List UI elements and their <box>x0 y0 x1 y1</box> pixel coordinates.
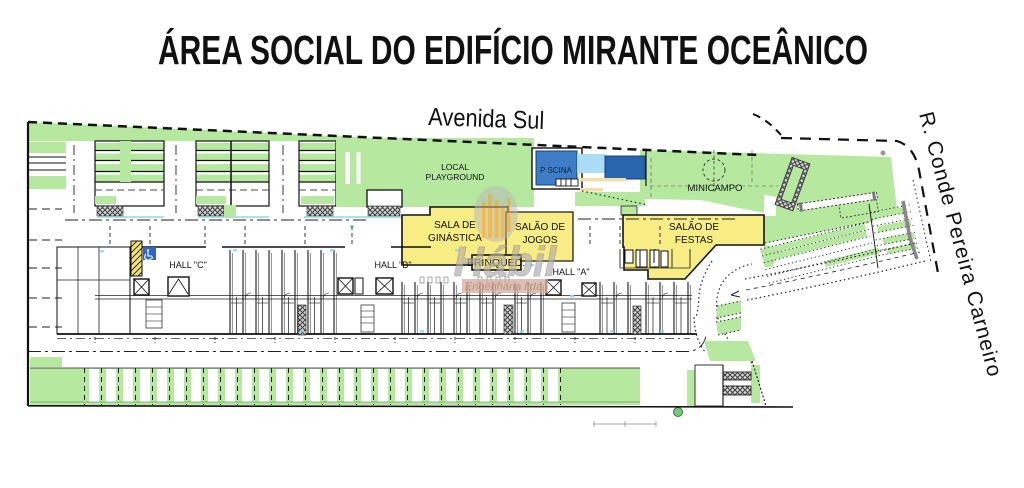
svg-text:FESTAS: FESTAS <box>675 235 713 246</box>
svg-text:MINICAMPO: MINICAMPO <box>688 183 743 194</box>
svg-text:ÁREA SOCIAL DO EDIFÍCIO MIRANT: ÁREA SOCIAL DO EDIFÍCIO MIRANTE OCEÂNICO <box>158 27 868 73</box>
svg-text:SALA DE: SALA DE <box>434 220 476 231</box>
svg-text:Engenharia ltda.: Engenharia ltda. <box>465 281 545 293</box>
svg-text:SALÃO DE: SALÃO DE <box>669 220 719 233</box>
svg-text:HALL "B": HALL "B" <box>374 260 411 270</box>
svg-text:SALÃO DE: SALÃO DE <box>515 220 565 233</box>
svg-text:P SCINA: P SCINA <box>540 166 573 175</box>
svg-text:PLAYGROUND: PLAYGROUND <box>426 172 485 182</box>
svg-text:Avenida Sul: Avenida Sul <box>428 103 545 135</box>
svg-text:Hábil: Hábil <box>454 238 558 285</box>
svg-text:LOCAL: LOCAL <box>441 162 469 172</box>
svg-text:HALL "C": HALL "C" <box>169 260 207 270</box>
svg-text:HALL "A": HALL "A" <box>552 267 589 277</box>
